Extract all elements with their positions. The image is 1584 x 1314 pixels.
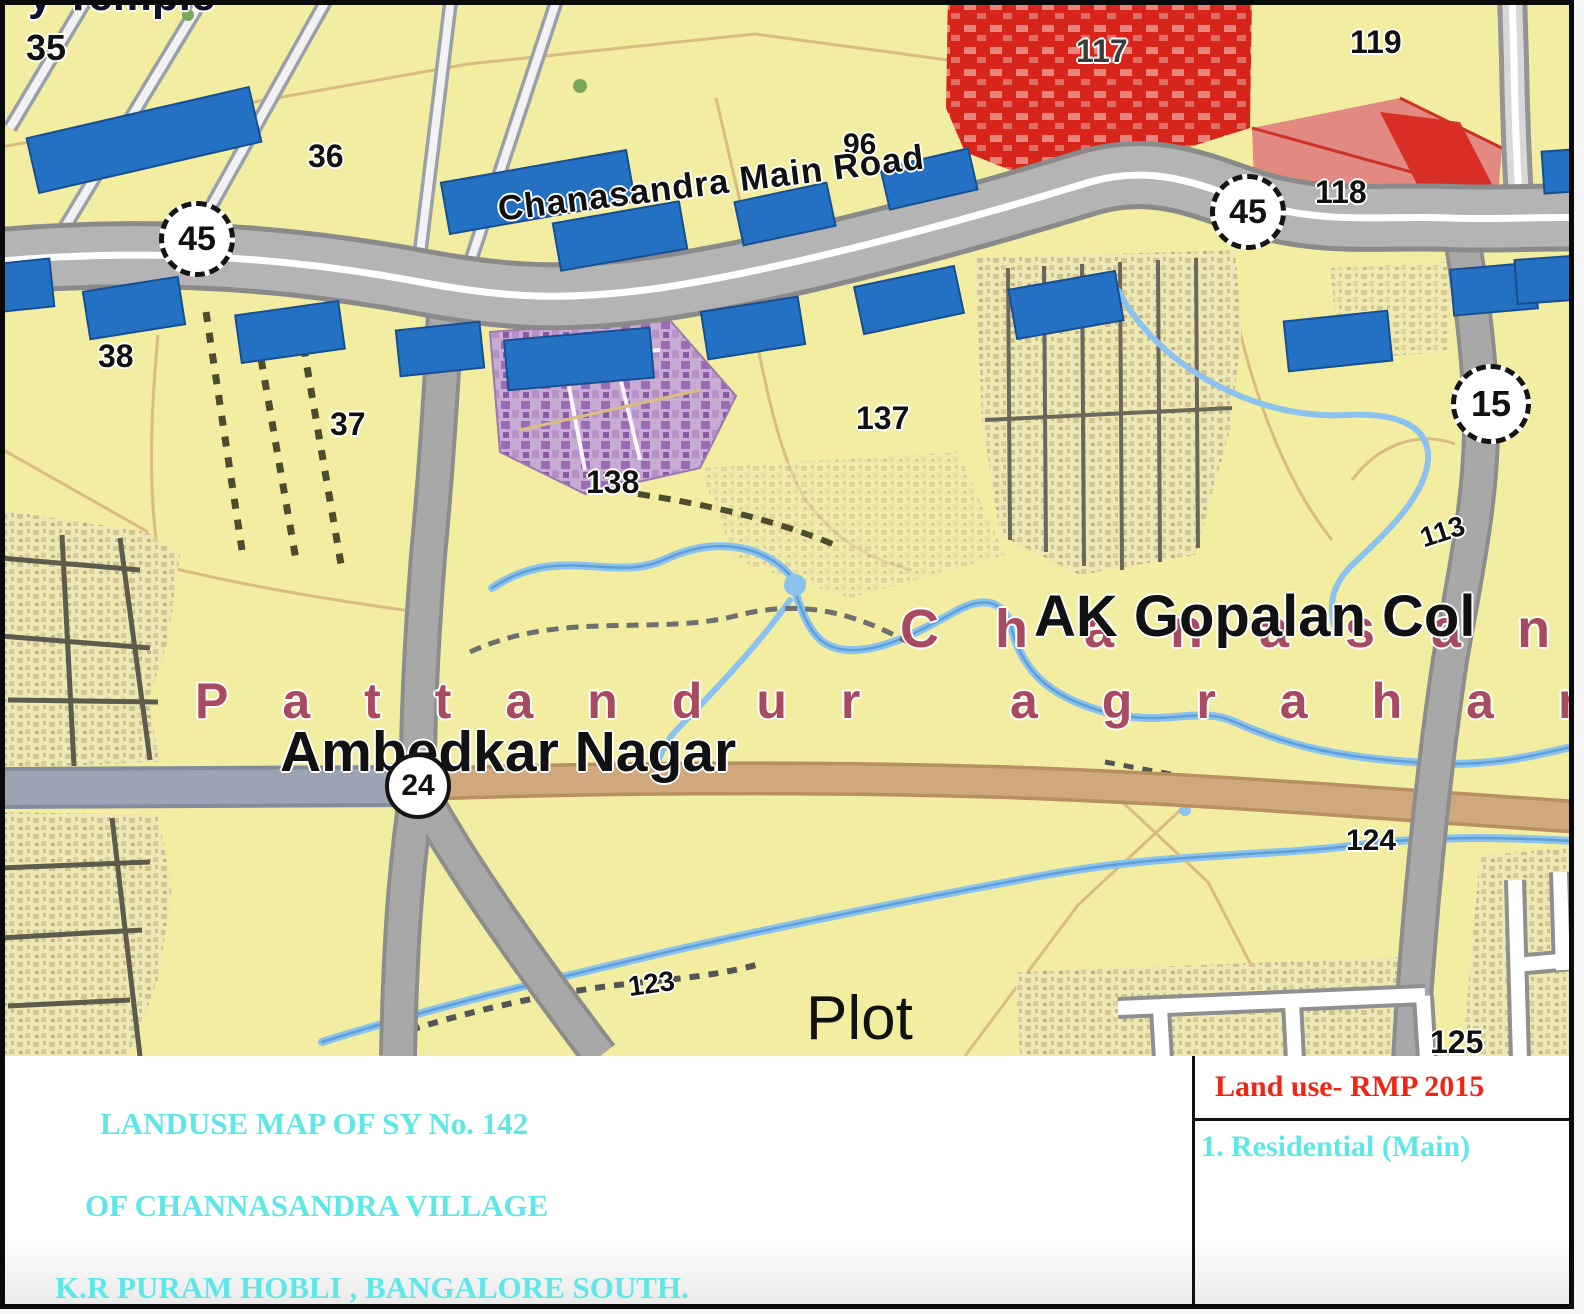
route-badge-45-left: 45 — [159, 201, 235, 277]
survey-number-123: 123 — [626, 967, 676, 1001]
place-name-ak-gopalan-col: AK Gopalan Col — [1034, 588, 1475, 646]
plot-label: Plot — [806, 988, 913, 1050]
survey-number-38: 38 — [98, 340, 134, 372]
survey-number-125: 125 — [1430, 1026, 1483, 1056]
route-badge-45-right: 45 — [1210, 174, 1286, 250]
title-line-2: OF CHANNASANDRA VILLAGE — [85, 1190, 548, 1221]
survey-number-124: 124 — [1346, 826, 1396, 856]
survey-number-35: 35 — [26, 30, 66, 66]
survey-number-117: 117 — [1076, 35, 1128, 67]
survey-number-119: 119 — [1350, 26, 1402, 58]
survey-number-36: 36 — [308, 140, 344, 172]
route-badge-24: 24 — [385, 753, 451, 819]
legend-divider-vertical — [1192, 1056, 1195, 1304]
title-line-1: LANDUSE MAP OF SY No. 142 — [100, 1108, 528, 1139]
village-name-pattandur: Pattandur — [195, 676, 914, 726]
place-name-ambedkar-nagar: Ambedkar Nagar — [280, 724, 736, 781]
legend-divider-horizontal — [1192, 1118, 1569, 1121]
landuse-map-page: y Temple 35 36 38 37 96 117 119 118 137 … — [0, 0, 1584, 1314]
village-name-agrahar: agrahar — [1010, 676, 1574, 726]
legend-item-residential-main: 1. Residential (Main) — [1201, 1132, 1470, 1162]
survey-number-137: 137 — [856, 402, 909, 434]
survey-number-118: 118 — [1315, 176, 1367, 208]
map-canvas: y Temple 35 36 38 37 96 117 119 118 137 … — [0, 0, 1574, 1056]
route-badge-15: 15 — [1451, 364, 1531, 444]
survey-number-138: 138 — [586, 466, 639, 498]
title-line-3: K.R PURAM HOBLI , BANGALORE SOUTH. — [55, 1272, 689, 1303]
legend-header: Land use- RMP 2015 — [1215, 1072, 1484, 1102]
title-legend-panel: LANDUSE MAP OF SY No. 142 OF CHANNASANDR… — [5, 1056, 1569, 1304]
survey-number-37: 37 — [330, 408, 366, 440]
clipped-temple-label: y Temple — [28, 0, 215, 18]
